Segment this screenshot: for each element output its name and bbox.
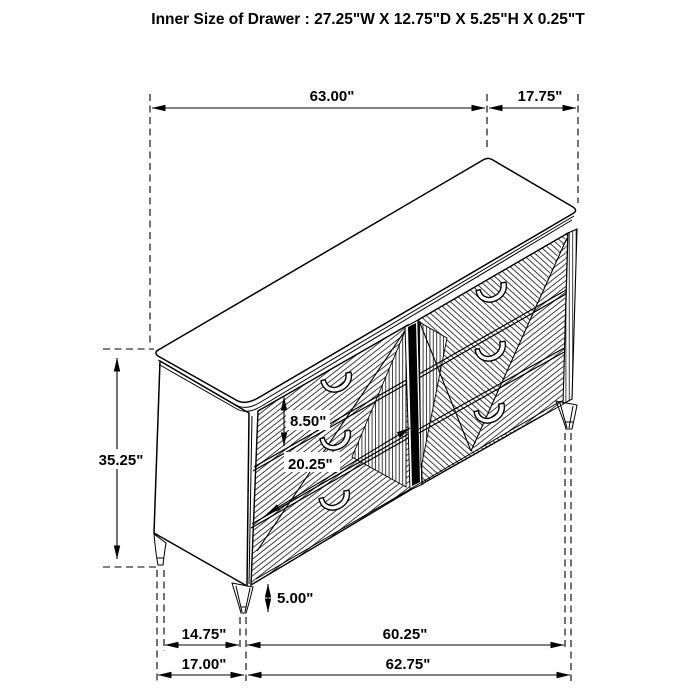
dresser-drawing	[154, 158, 577, 613]
dim-overall-width-label: 63.00"	[310, 88, 355, 105]
dim-foot-depth-inner-label: 14.75"	[182, 626, 227, 643]
dim-leg-height: 5.00"	[268, 584, 316, 612]
page-title: Inner Size of Drawer : 27.25"W X 12.75"D…	[151, 11, 585, 28]
dim-leg-height-label: 5.00"	[277, 590, 313, 607]
dimension-diagram-page: Inner Size of Drawer : 27.25"W X 12.75"D…	[0, 0, 700, 700]
dim-overall-height-label: 35.25"	[99, 452, 144, 469]
dim-drawer-height-label: 8.50"	[290, 413, 326, 430]
dim-foot-width-outer: 62.75"	[248, 656, 570, 675]
dim-top-depth-label: 17.75"	[518, 88, 563, 105]
dim-foot-width-inner: 60.25"	[247, 626, 564, 645]
dim-foot-width-outer-label: 62.75"	[386, 656, 431, 673]
side-panel	[154, 361, 249, 586]
dim-foot-depth-outer: 17.00"	[158, 656, 244, 675]
front-left-leg	[232, 583, 253, 613]
dim-foot-width-inner-label: 60.25"	[383, 626, 428, 643]
dresser-dimension-diagram: Inner Size of Drawer : 27.25"W X 12.75"D…	[0, 0, 700, 700]
dim-overall-width: 63.00"	[152, 88, 485, 108]
dim-overall-height: 35.25"	[94, 358, 148, 559]
dim-top-depth: 17.75"	[489, 88, 576, 108]
dim-foot-depth-outer-label: 17.00"	[182, 656, 227, 673]
dim-drawer-width-label: 20.25"	[288, 456, 333, 473]
dim-foot-depth-inner: 14.75"	[165, 626, 239, 645]
